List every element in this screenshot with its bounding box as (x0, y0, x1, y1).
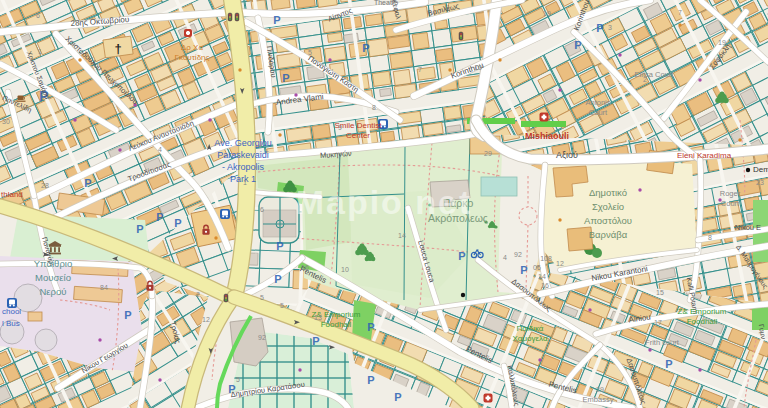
svg-text:29: 29 (596, 386, 604, 393)
svg-text:5: 5 (236, 376, 240, 383)
svg-text:Χαμόγελα: Χαμόγελα (512, 334, 547, 343)
svg-text:P: P (574, 39, 581, 51)
svg-text:Αξιού: Αξιού (556, 150, 578, 160)
svg-text:Nikou E: Nikou E (735, 223, 761, 232)
svg-text:Frith court: Frith court (645, 338, 680, 347)
svg-text:Theatro: Theatro (374, 0, 398, 6)
svg-text:23: 23 (756, 179, 764, 186)
svg-text:chool: chool (2, 307, 21, 316)
svg-text:84: 84 (100, 284, 108, 291)
svg-text:8: 8 (708, 234, 712, 241)
svg-text:Embassy: Embassy (583, 395, 614, 404)
svg-text:Center: Center (346, 131, 370, 140)
svg-text:14: 14 (398, 232, 406, 239)
svg-text:P: P (520, 264, 527, 276)
svg-text:28: 28 (41, 182, 49, 189)
svg-text:P: P (274, 273, 281, 285)
svg-text:P: P (276, 240, 283, 252)
svg-text:10: 10 (474, 64, 482, 71)
svg-text:P: P (156, 211, 163, 223)
svg-text:Elitsa Court: Elitsa Court (635, 70, 675, 79)
svg-text:P: P (367, 321, 374, 333)
svg-text:29: 29 (484, 150, 492, 157)
svg-text:6: 6 (36, 12, 40, 19)
svg-text:17: 17 (654, 319, 662, 326)
svg-text:P: P (136, 223, 143, 235)
svg-text:Paraskevaidi: Paraskevaidi (217, 150, 269, 160)
svg-text:Antonis: Antonis (585, 98, 610, 107)
svg-text:P: P (458, 250, 465, 262)
svg-text:Mapio.net: Mapio.net (296, 183, 473, 221)
svg-text:8: 8 (372, 104, 376, 111)
svg-text:16: 16 (301, 264, 309, 271)
svg-text:P: P (273, 14, 280, 26)
svg-text:Γκουτίδης: Γκουτίδης (175, 53, 210, 62)
svg-text:10: 10 (341, 266, 349, 273)
svg-text:5: 5 (260, 294, 264, 301)
svg-text:P: P (596, 22, 603, 34)
svg-text:Roger: Roger (720, 189, 741, 198)
svg-text:P: P (312, 335, 319, 347)
svg-text:P: P (124, 309, 131, 321)
svg-text:P: P (84, 177, 91, 189)
svg-text:Ζ& Emporium: Ζ& Emporium (678, 307, 727, 316)
svg-text:Foodhall: Foodhall (687, 317, 718, 326)
svg-text:4: 4 (158, 146, 162, 153)
svg-text:Σχολείο: Σχολείο (592, 201, 624, 212)
svg-text:108: 108 (540, 255, 552, 262)
svg-text:9: 9 (338, 124, 342, 131)
svg-text:Νερού: Νερού (40, 286, 67, 297)
svg-text:2: 2 (643, 76, 647, 83)
svg-text:5: 5 (308, 49, 312, 56)
svg-text:P: P (394, 391, 401, 403)
svg-text:Βαρνάβα: Βαρνάβα (589, 229, 628, 240)
svg-text:15: 15 (656, 289, 664, 296)
svg-text:7: 7 (418, 66, 422, 73)
svg-text:Ave. Georgiou: Ave. Georgiou (214, 138, 271, 148)
svg-text:5: 5 (280, 302, 284, 309)
svg-text:†: † (114, 41, 121, 56)
svg-text:12: 12 (202, 316, 210, 323)
svg-text:P: P (362, 42, 369, 54)
svg-text:1: 1 (243, 179, 247, 186)
svg-text:Δημοτικό: Δημοτικό (589, 187, 627, 198)
svg-text:P: P (367, 374, 374, 386)
svg-text:16: 16 (541, 282, 549, 289)
svg-text:l Bus: l Bus (2, 319, 20, 328)
svg-text:P: P (282, 72, 289, 84)
svg-text:Court: Court (589, 108, 608, 117)
svg-text:Foodhall: Foodhall (321, 320, 352, 329)
svg-text:92: 92 (514, 251, 522, 258)
svg-text:Court: Court (721, 199, 740, 208)
svg-text:1: 1 (38, 48, 42, 55)
svg-text:Eleni Karadima: Eleni Karadima (677, 151, 732, 160)
svg-text:19: 19 (718, 39, 726, 46)
svg-text:thland: thland (1, 190, 23, 199)
svg-text:3: 3 (608, 24, 612, 31)
svg-text:Deme: Deme (753, 165, 768, 174)
svg-text:P: P (174, 217, 181, 229)
svg-text:92: 92 (258, 334, 266, 341)
svg-text:7: 7 (678, 9, 682, 16)
svg-text:Αποστόλου: Αποστόλου (584, 215, 632, 226)
svg-text:4: 4 (503, 254, 507, 261)
svg-text:Μουσείο: Μουσείο (35, 272, 71, 283)
svg-text:06: 06 (533, 264, 541, 271)
svg-text:Παιδικά: Παιδικά (517, 324, 544, 333)
svg-text:14: 14 (538, 273, 546, 280)
svg-text:- Akropolis: - Akropolis (222, 162, 265, 172)
svg-text:2: 2 (196, 291, 200, 298)
svg-text:P: P (665, 358, 672, 370)
svg-text:Δρ Χα: Δρ Χα (181, 43, 203, 52)
svg-text:Υπαίθριο: Υπαίθριο (34, 258, 72, 269)
svg-text:Mishiaouli: Mishiaouli (525, 131, 569, 141)
svg-text:19: 19 (543, 10, 551, 17)
svg-text:13: 13 (314, 314, 322, 321)
svg-text:6: 6 (260, 206, 264, 213)
svg-text:12: 12 (556, 260, 564, 267)
svg-text:30: 30 (2, 118, 10, 125)
